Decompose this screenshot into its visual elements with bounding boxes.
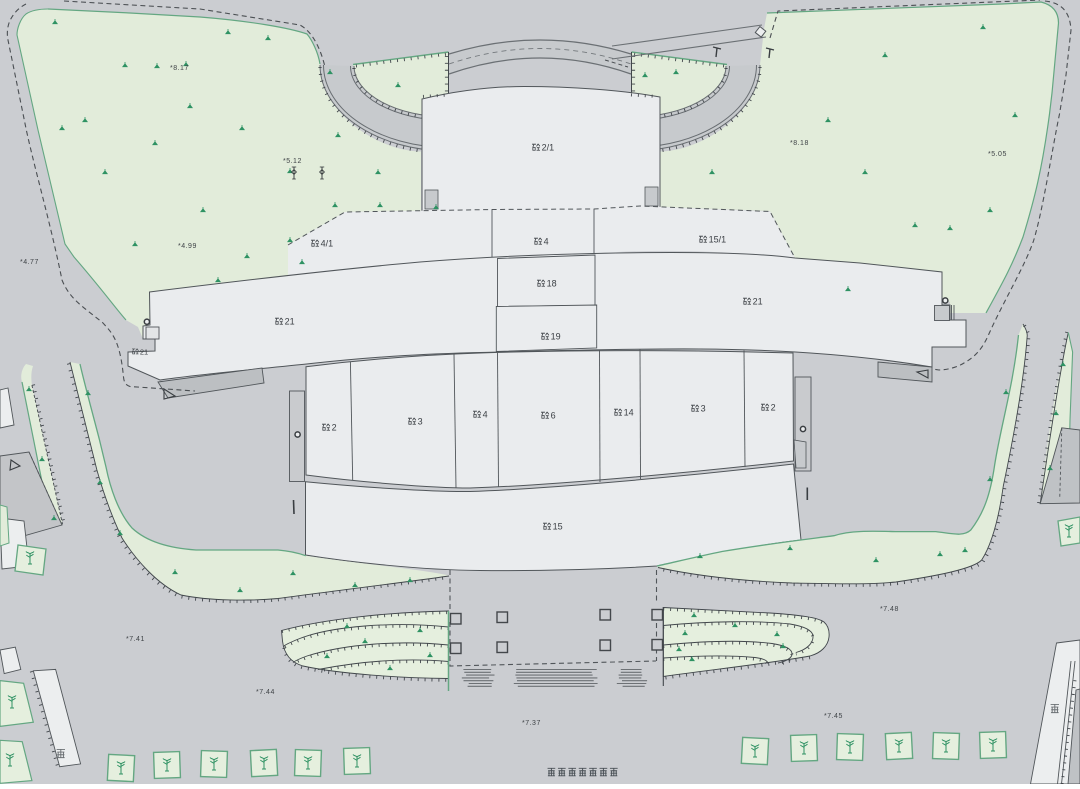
svg-text:*8.18: *8.18 bbox=[790, 140, 809, 147]
svg-text:2: 2 bbox=[771, 403, 776, 413]
svg-text:4: 4 bbox=[483, 410, 488, 420]
svg-text:4/1: 4/1 bbox=[321, 239, 334, 249]
svg-text:*8.17: *8.17 bbox=[170, 65, 189, 72]
svg-text:3: 3 bbox=[701, 404, 706, 414]
svg-text:21: 21 bbox=[140, 347, 148, 356]
svg-text:*7.45: *7.45 bbox=[824, 713, 843, 720]
svg-text:*5.05: *5.05 bbox=[988, 151, 1007, 158]
svg-text:21: 21 bbox=[753, 297, 763, 307]
svg-text:*5.12: *5.12 bbox=[283, 158, 302, 165]
svg-text:15: 15 bbox=[553, 522, 563, 532]
svg-text:*7.37: *7.37 bbox=[522, 720, 541, 727]
svg-text:*7.44: *7.44 bbox=[256, 689, 275, 696]
svg-text:14: 14 bbox=[624, 408, 634, 418]
svg-text:4: 4 bbox=[544, 237, 549, 247]
svg-text:18: 18 bbox=[547, 279, 557, 289]
svg-text:15/1: 15/1 bbox=[709, 235, 727, 245]
svg-text:2/1: 2/1 bbox=[542, 143, 555, 153]
svg-text:6: 6 bbox=[551, 411, 556, 421]
svg-text:21: 21 bbox=[285, 317, 295, 327]
svg-text:3: 3 bbox=[418, 417, 423, 427]
svg-text:2: 2 bbox=[332, 423, 337, 433]
svg-text:*7.48: *7.48 bbox=[880, 606, 899, 613]
svg-text:*4.99: *4.99 bbox=[178, 243, 197, 250]
svg-text:*7.41: *7.41 bbox=[126, 636, 145, 643]
svg-text:*4.77: *4.77 bbox=[20, 259, 39, 266]
svg-text:19: 19 bbox=[551, 332, 561, 342]
